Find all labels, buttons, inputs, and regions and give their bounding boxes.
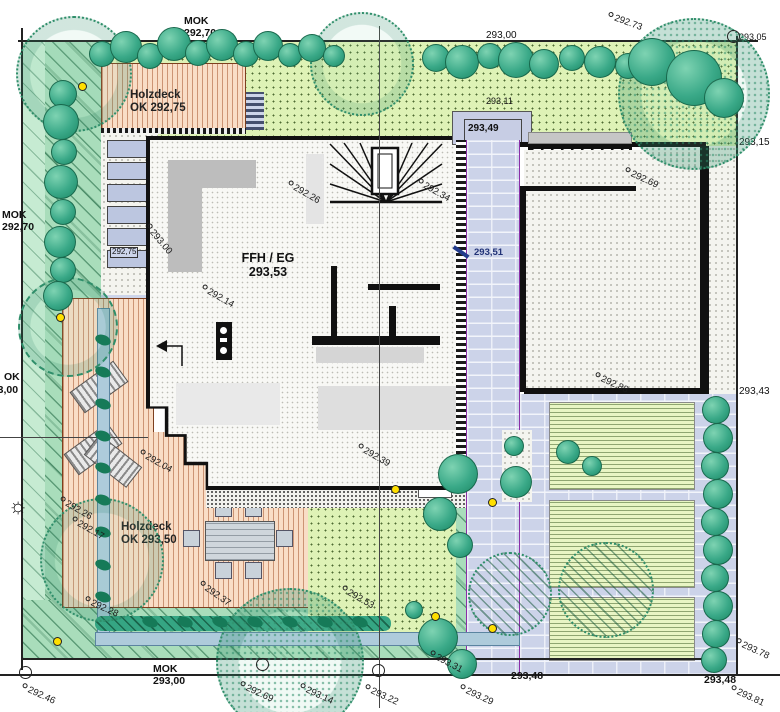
spot-elevation: 292.69 [623,166,660,191]
spot-elevation: 293.22 [363,683,400,708]
spot-elevation: 292.37 [197,579,233,609]
spot-elevation: 293.78 [734,637,771,662]
spot-elevation: 292.04 [137,448,174,476]
spot-elevation: 293.81 [729,684,766,709]
spot-elevation: 293.00 [143,222,175,257]
spot-elevation: 293.29 [458,683,495,708]
spot-elevation: 292.69 [238,680,275,705]
spot-elevation: 292.26 [285,179,322,207]
spot-elevation: 292.73 [606,10,644,33]
spot-elevation: 292.14 [199,283,236,311]
spot-elevation: 293.31 [427,649,464,676]
spot-elevation: 292.46 [20,682,57,707]
spot-elevation: 292.39 [355,442,392,470]
spot-elevation: 292.53 [339,584,376,612]
spot-elevation: 293.14 [298,682,335,707]
spot-elevation: 292.88 [593,371,630,396]
site-plan: 293,49 293,51 ☼ MOK 292,70 293,00 293,11… [0,0,780,712]
spot-elevation: 292.28 [83,595,120,620]
spot-elevation-layer: 292.73292.69292.88292.26292.34292.14293.… [0,0,780,712]
spot-elevation: 292.34 [415,177,452,205]
